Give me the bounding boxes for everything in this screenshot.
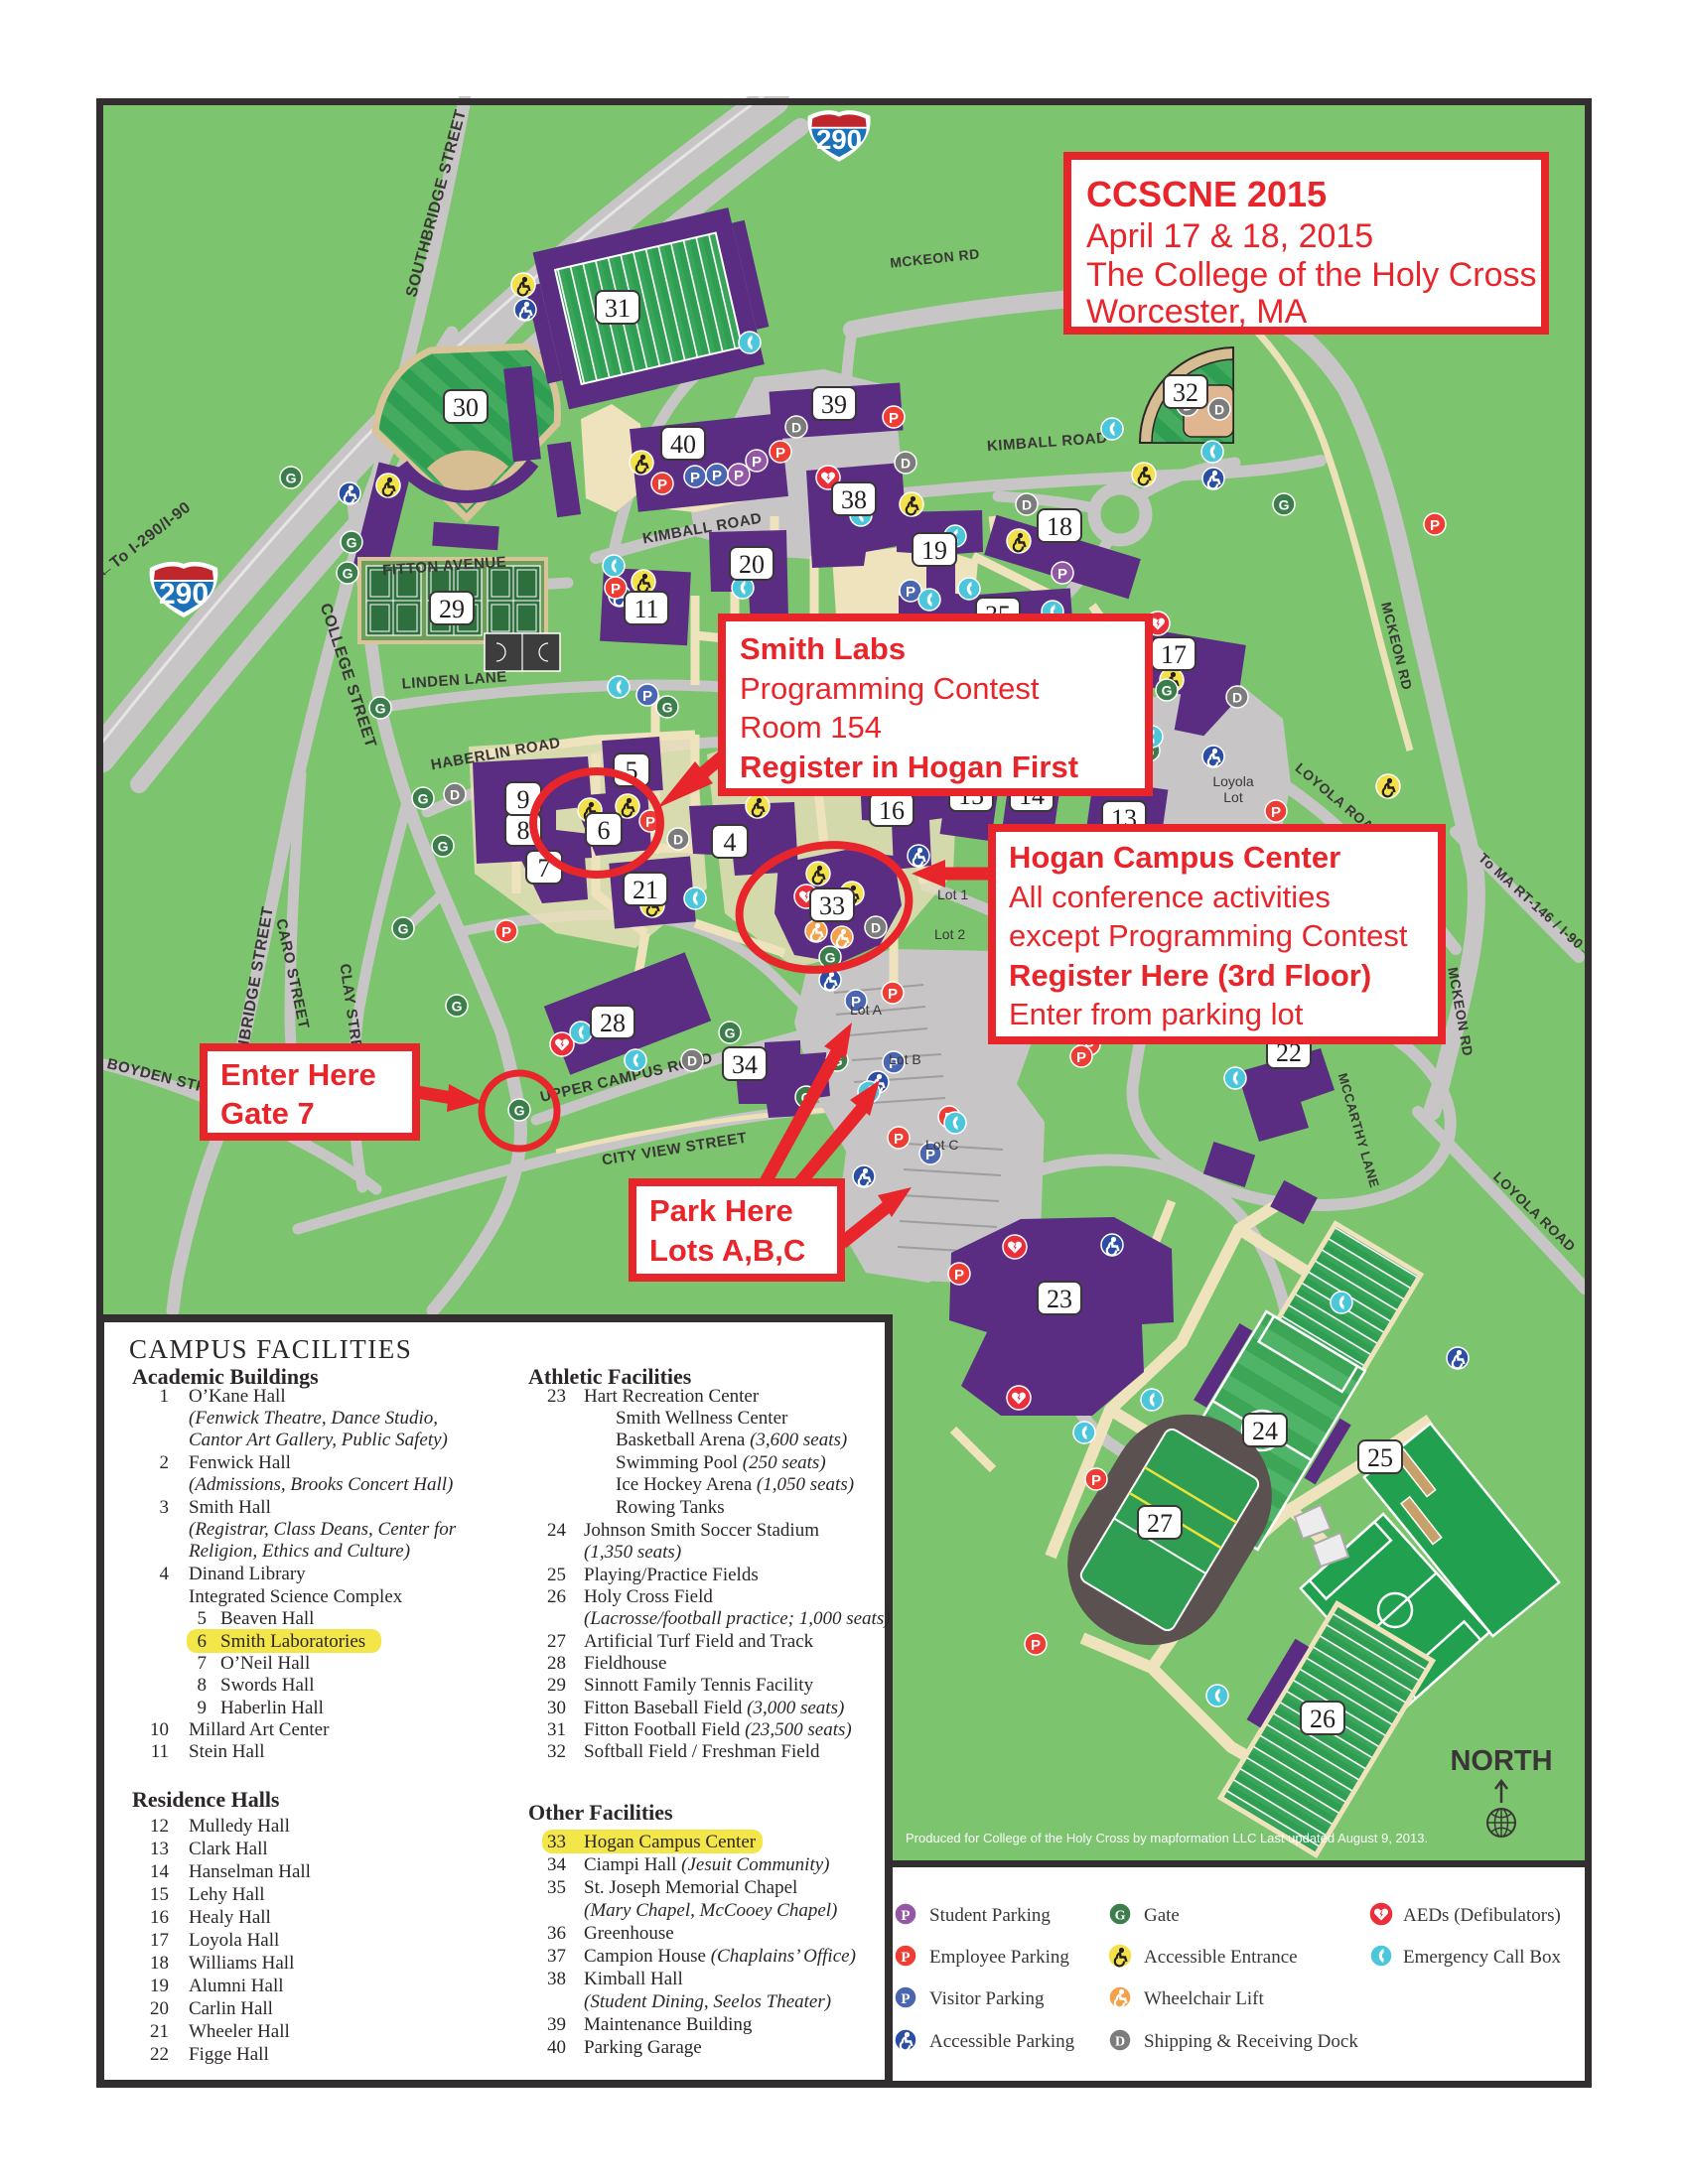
svg-text:9: 9	[517, 785, 530, 814]
svg-text:23: 23	[1047, 1285, 1072, 1313]
svg-text:4: 4	[724, 828, 737, 857]
svg-text:11: 11	[633, 595, 658, 623]
svg-text:CAMPUS FACILITIES: CAMPUS FACILITIES	[129, 1334, 412, 1364]
svg-text:34: 34	[732, 1050, 758, 1079]
svg-text:40: 40	[670, 430, 696, 459]
svg-text:(Admissions, Brooks Concert Ha: (Admissions, Brooks Concert Hall)	[189, 1474, 453, 1495]
svg-text:Enter from parking lot: Enter from parking lot	[1009, 997, 1304, 1031]
svg-text:(Lacrosse/football practice; 1: (Lacrosse/football practice; 1,000 seats…	[584, 1608, 891, 1629]
svg-text:Williams Hall: Williams Hall	[189, 1953, 294, 1974]
svg-text:30: 30	[453, 393, 479, 422]
svg-text:Programming Contest: Programming Contest	[740, 671, 1040, 706]
svg-text:6: 6	[198, 1631, 208, 1652]
svg-text:15: 15	[150, 1884, 169, 1905]
svg-text:27: 27	[1147, 1509, 1173, 1538]
svg-text:Worcester, MA: Worcester, MA	[1086, 293, 1308, 331]
svg-text:24: 24	[1252, 1417, 1278, 1445]
svg-text:Employee Parking: Employee Parking	[929, 1947, 1069, 1968]
svg-text:O’Neil Hall: O’Neil Hall	[220, 1653, 310, 1674]
svg-text:23: 23	[547, 1386, 566, 1407]
svg-text:Hart Recreation Center: Hart Recreation Center	[584, 1386, 760, 1407]
svg-text:Campion House (Chaplains’ Offi: Campion House (Chaplains’ Office)	[584, 1946, 856, 1967]
svg-text:Stein Hall: Stein Hall	[189, 1741, 265, 1762]
svg-text:Carlin Hall: Carlin Hall	[189, 1998, 273, 2019]
svg-text:4: 4	[160, 1564, 170, 1584]
svg-text:Room 154: Room 154	[740, 710, 882, 745]
svg-text:All conference activities: All conference activities	[1009, 880, 1331, 914]
svg-text:Lot B: Lot B	[889, 1051, 921, 1067]
svg-text:38: 38	[547, 1969, 566, 1989]
svg-text:6: 6	[598, 816, 611, 845]
svg-text:Playing/Practice Fields: Playing/Practice Fields	[584, 1565, 759, 1585]
svg-text:13: 13	[150, 1839, 169, 1859]
svg-text:Basketball Arena (3,600 seats): Basketball Arena (3,600 seats)	[616, 1430, 847, 1450]
svg-text:Dinand Library: Dinand Library	[189, 1564, 306, 1584]
svg-text:Fieldhouse: Fieldhouse	[584, 1653, 666, 1674]
svg-text:16: 16	[150, 1907, 169, 1928]
svg-text:Cantor Art Gallery, Public Saf: Cantor Art Gallery, Public Safety)	[189, 1430, 448, 1450]
svg-text:Lot: Lot	[1223, 789, 1243, 805]
svg-text:36: 36	[547, 1923, 566, 1944]
svg-text:Religion, Ethics and Culture): Religion, Ethics and Culture)	[188, 1541, 410, 1562]
svg-text:26: 26	[547, 1586, 566, 1607]
svg-text:32: 32	[1173, 378, 1198, 407]
svg-text:Smith Wellness Center: Smith Wellness Center	[616, 1408, 788, 1429]
svg-text:Smith Laboratories: Smith Laboratories	[220, 1631, 365, 1652]
svg-text:25: 25	[1367, 1443, 1393, 1472]
svg-text:Enter Here: Enter Here	[220, 1057, 376, 1092]
svg-text:37: 37	[547, 1946, 566, 1967]
svg-text:10: 10	[150, 1719, 169, 1740]
svg-text:The College of the Holy Cross: The College of the Holy Cross	[1086, 256, 1537, 294]
svg-text:(Student Dining, Seelos Theate: (Student Dining, Seelos Theater)	[584, 1991, 831, 2012]
svg-text:Loyola Hall: Loyola Hall	[189, 1930, 279, 1951]
svg-text:7: 7	[198, 1653, 208, 1674]
svg-text:Mulledy Hall: Mulledy Hall	[189, 1816, 290, 1837]
svg-text:33: 33	[819, 891, 845, 920]
svg-text:14: 14	[150, 1861, 170, 1882]
svg-text:Swords Hall: Swords Hall	[220, 1675, 314, 1696]
svg-text:Softball Field / Freshman Fiel: Softball Field / Freshman Field	[584, 1741, 820, 1762]
svg-text:18: 18	[150, 1953, 169, 1974]
svg-text:32: 32	[547, 1741, 566, 1762]
svg-text:Wheeler Hall: Wheeler Hall	[189, 2021, 290, 2042]
svg-text:25: 25	[547, 1565, 566, 1585]
svg-text:30: 30	[547, 1698, 566, 1718]
svg-text:39: 39	[547, 2014, 566, 2035]
svg-text:Haberlin Hall: Haberlin Hall	[220, 1698, 324, 1718]
svg-text:Residence Halls: Residence Halls	[132, 1787, 280, 1812]
svg-text:20: 20	[150, 1998, 169, 2019]
svg-text:Alumni Hall: Alumni Hall	[189, 1976, 284, 1996]
svg-text:31: 31	[547, 1719, 566, 1740]
svg-text:Fitton Football Field (23,500: Fitton Football Field (23,500 seats)	[584, 1719, 852, 1740]
svg-text:Sinnott Family Tennis Facility: Sinnott Family Tennis Facility	[584, 1675, 814, 1696]
svg-text:Gate 7: Gate 7	[220, 1096, 315, 1131]
svg-text:2: 2	[160, 1452, 170, 1473]
svg-text:8: 8	[198, 1675, 208, 1696]
svg-text:(1,350 seats): (1,350 seats)	[584, 1542, 681, 1563]
svg-text:21: 21	[633, 876, 658, 904]
svg-text:except Programming Contest: except Programming Contest	[1009, 918, 1408, 953]
svg-text:Shipping & Receiving Dock: Shipping & Receiving Dock	[1144, 2031, 1358, 2052]
svg-text:28: 28	[600, 1009, 626, 1037]
svg-text:Park Here: Park Here	[649, 1193, 793, 1228]
svg-text:Loyola: Loyola	[1212, 773, 1253, 789]
svg-text:8: 8	[517, 816, 530, 845]
svg-text:20: 20	[739, 550, 765, 579]
svg-text:1: 1	[160, 1386, 170, 1407]
svg-text:17: 17	[1161, 640, 1187, 669]
svg-text:31: 31	[605, 294, 631, 323]
svg-text:Wheelchair Lift: Wheelchair Lift	[1144, 1988, 1265, 2009]
svg-text:26: 26	[1310, 1705, 1336, 1733]
svg-text:Accessible Entrance: Accessible Entrance	[1144, 1947, 1298, 1968]
svg-text:Artificial Turf Field and Trac: Artificial Turf Field and Track	[584, 1631, 814, 1652]
svg-text:Ice Hockey Arena (1,050 seats): Ice Hockey Arena (1,050 seats)	[616, 1474, 854, 1495]
svg-text:29: 29	[547, 1675, 566, 1696]
svg-text:Smith Labs: Smith Labs	[740, 631, 906, 666]
svg-text:Fitton Baseball Field (3,000 s: Fitton Baseball Field (3,000 seats)	[584, 1698, 844, 1718]
svg-text:39: 39	[821, 390, 847, 419]
svg-text:34: 34	[547, 1854, 567, 1875]
svg-text:Hanselman Hall: Hanselman Hall	[189, 1861, 311, 1882]
svg-text:Johnson Smith Soccer Stadium: Johnson Smith Soccer Stadium	[584, 1520, 819, 1541]
svg-text:27: 27	[547, 1631, 566, 1652]
svg-text:St. Joseph Memorial Chapel: St. Joseph Memorial Chapel	[584, 1877, 797, 1898]
svg-text:CCSCNE 2015: CCSCNE 2015	[1086, 174, 1327, 214]
svg-text:Kimball Hall: Kimball Hall	[584, 1969, 683, 1989]
svg-text:Hogan Campus Center: Hogan Campus Center	[1009, 840, 1340, 875]
svg-text:O’Kane Hall: O’Kane Hall	[189, 1386, 286, 1407]
svg-text:Millard Art Center: Millard Art Center	[189, 1719, 330, 1740]
svg-text:Accessible Parking: Accessible Parking	[929, 2031, 1075, 2052]
svg-text:28: 28	[547, 1653, 566, 1674]
svg-text:Smith Hall: Smith Hall	[189, 1497, 271, 1518]
svg-text:(Registrar, Class Deans, Cente: (Registrar, Class Deans, Center for	[189, 1519, 457, 1540]
svg-text:Lot 1: Lot 1	[937, 887, 968, 902]
svg-text:16: 16	[879, 796, 905, 825]
svg-text:19: 19	[150, 1976, 169, 1996]
svg-text:290: 290	[816, 124, 862, 155]
svg-text:22: 22	[150, 2044, 169, 2065]
svg-text:Other Facilities: Other Facilities	[528, 1800, 673, 1825]
svg-text:40: 40	[547, 2037, 566, 2058]
svg-text:11: 11	[151, 1741, 169, 1762]
svg-text:38: 38	[841, 485, 867, 514]
svg-text:Gate: Gate	[1144, 1905, 1180, 1926]
svg-text:Integrated Science Complex: Integrated Science Complex	[189, 1586, 403, 1607]
svg-text:12: 12	[150, 1816, 169, 1837]
svg-text:Lot 2: Lot 2	[934, 926, 965, 942]
svg-text:290: 290	[159, 578, 209, 611]
svg-text:33: 33	[547, 1832, 566, 1852]
svg-text:Visitor Parking: Visitor Parking	[929, 1988, 1045, 2009]
svg-text:17: 17	[150, 1930, 169, 1951]
svg-text:24: 24	[547, 1520, 567, 1541]
svg-text:18: 18	[1047, 512, 1072, 541]
svg-text:Swimming Pool (250 seats): Swimming Pool (250 seats)	[616, 1452, 826, 1473]
svg-text:Emergency Call Box: Emergency Call Box	[1403, 1947, 1562, 1968]
svg-text:3: 3	[160, 1497, 170, 1518]
svg-text:Produced for College of the Ho: Produced for College of the Holy Cross b…	[906, 1831, 1428, 1845]
svg-text:19: 19	[921, 536, 947, 565]
svg-text:(Mary Chapel, McCooey Chapel): (Mary Chapel, McCooey Chapel)	[584, 1900, 837, 1921]
svg-text:AEDs (Defibulators): AEDs (Defibulators)	[1403, 1905, 1561, 1926]
svg-text:Student Parking: Student Parking	[929, 1905, 1051, 1926]
svg-text:21: 21	[150, 2021, 169, 2042]
svg-text:April 17 & 18, 2015: April 17 & 18, 2015	[1086, 217, 1373, 255]
svg-text:Rowing Tanks: Rowing Tanks	[616, 1497, 725, 1518]
svg-text:Lot A: Lot A	[850, 1002, 883, 1018]
svg-text:Holy Cross Field: Holy Cross Field	[584, 1586, 713, 1607]
svg-text:Fenwick Hall: Fenwick Hall	[189, 1452, 291, 1473]
svg-text:29: 29	[439, 595, 465, 623]
svg-text:Ciampi Hall (Jesuit Community): Ciampi Hall (Jesuit Community)	[584, 1854, 829, 1875]
svg-text:Figge Hall: Figge Hall	[189, 2044, 269, 2065]
svg-text:Maintenance Building: Maintenance Building	[584, 2014, 753, 2035]
svg-text:(Fenwick Theatre, Dance Studio: (Fenwick Theatre, Dance Studio,	[189, 1408, 438, 1429]
svg-text:Lehy Hall: Lehy Hall	[189, 1884, 265, 1905]
svg-text:5: 5	[198, 1608, 208, 1629]
svg-text:Lots A,B,C: Lots A,B,C	[649, 1233, 805, 1268]
svg-text:Healy Hall: Healy Hall	[189, 1907, 271, 1928]
svg-text:Register in Hogan First: Register in Hogan First	[740, 750, 1078, 784]
svg-text:Register Here (3rd Floor): Register Here (3rd Floor)	[1009, 958, 1371, 993]
svg-text:Parking Garage: Parking Garage	[584, 2037, 702, 2058]
svg-text:Lot C: Lot C	[925, 1137, 958, 1153]
svg-text:9: 9	[198, 1698, 208, 1718]
svg-text:Beaven Hall: Beaven Hall	[220, 1608, 314, 1629]
svg-text:Hogan Campus Center: Hogan Campus Center	[584, 1832, 757, 1852]
svg-text:Clark Hall: Clark Hall	[189, 1839, 268, 1859]
svg-text:NORTH: NORTH	[1450, 1745, 1552, 1777]
svg-text:35: 35	[547, 1877, 566, 1898]
svg-text:Greenhouse: Greenhouse	[584, 1923, 674, 1944]
